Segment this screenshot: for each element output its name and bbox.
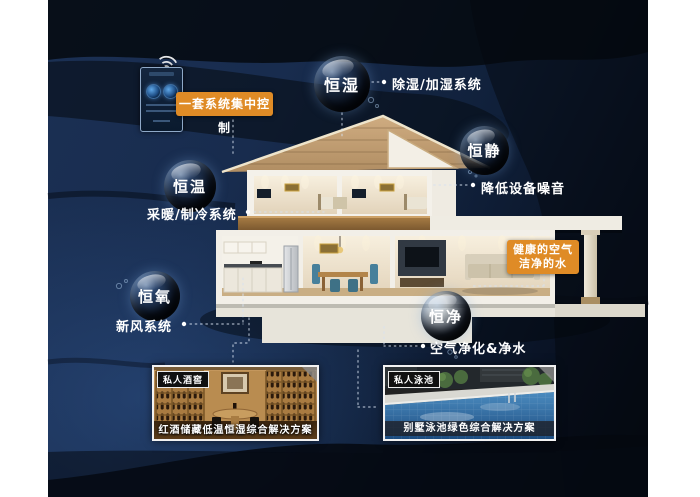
highlight-line2: 洁净的水 — [507, 257, 579, 271]
photo-caption-pool: 别墅泳池绿色综合解决方案 — [385, 421, 554, 436]
desc-constant-oxygen: 新风系统 — [116, 316, 172, 335]
highlight-line1: 健康的空气 — [507, 243, 579, 257]
desc-constant-temperature: 采暖/制冷系统 — [147, 204, 237, 223]
panel-header-bar — [149, 72, 174, 76]
panel-row — [153, 120, 169, 122]
photo-pool: 私人泳池 别墅泳池绿色综合解决方案 — [383, 365, 556, 441]
photo-tag-pool: 私人泳池 — [388, 371, 440, 388]
photo-tag-wine: 私人酒窖 — [157, 371, 209, 388]
photo-wine-cellar: 私人酒窖 红酒储藏低温恒湿综合解决方案 — [152, 365, 319, 441]
panel-row — [146, 110, 177, 112]
bubble-constant-clean: 恒净 — [421, 291, 471, 341]
photo-caption-wine: 红酒储藏低温恒湿综合解决方案 — [154, 421, 317, 436]
bubble-label: 恒氧 — [138, 286, 172, 307]
central-control-label: 一套系统集中控制 — [176, 92, 273, 116]
panel-dial-left[interactable] — [146, 84, 161, 99]
bubble-label: 恒净 — [429, 306, 463, 327]
bubble-constant-humidity: 恒湿 — [314, 56, 370, 112]
panel-row — [146, 104, 177, 106]
bubble-label: 恒温 — [173, 176, 207, 197]
desc-constant-humidity: 除湿/加湿系统 — [392, 74, 482, 93]
healthy-air-clean-water-box: 健康的空气 洁净的水 — [507, 240, 579, 274]
bubble-label: 恒静 — [467, 140, 501, 161]
bubble-label: 恒湿 — [324, 72, 360, 96]
desc-constant-quiet: 降低设备噪音 — [481, 178, 565, 197]
infographic-stage: 一套系统集中控制 恒湿 除湿/加湿系统 恒静 降低设备噪音 恒温 采暖/制冷系统… — [0, 0, 700, 497]
bubble-constant-quiet: 恒静 — [460, 126, 509, 175]
desc-constant-clean: 空气净化&净水 — [430, 338, 526, 357]
bubble-constant-oxygen: 恒氧 — [130, 271, 180, 321]
